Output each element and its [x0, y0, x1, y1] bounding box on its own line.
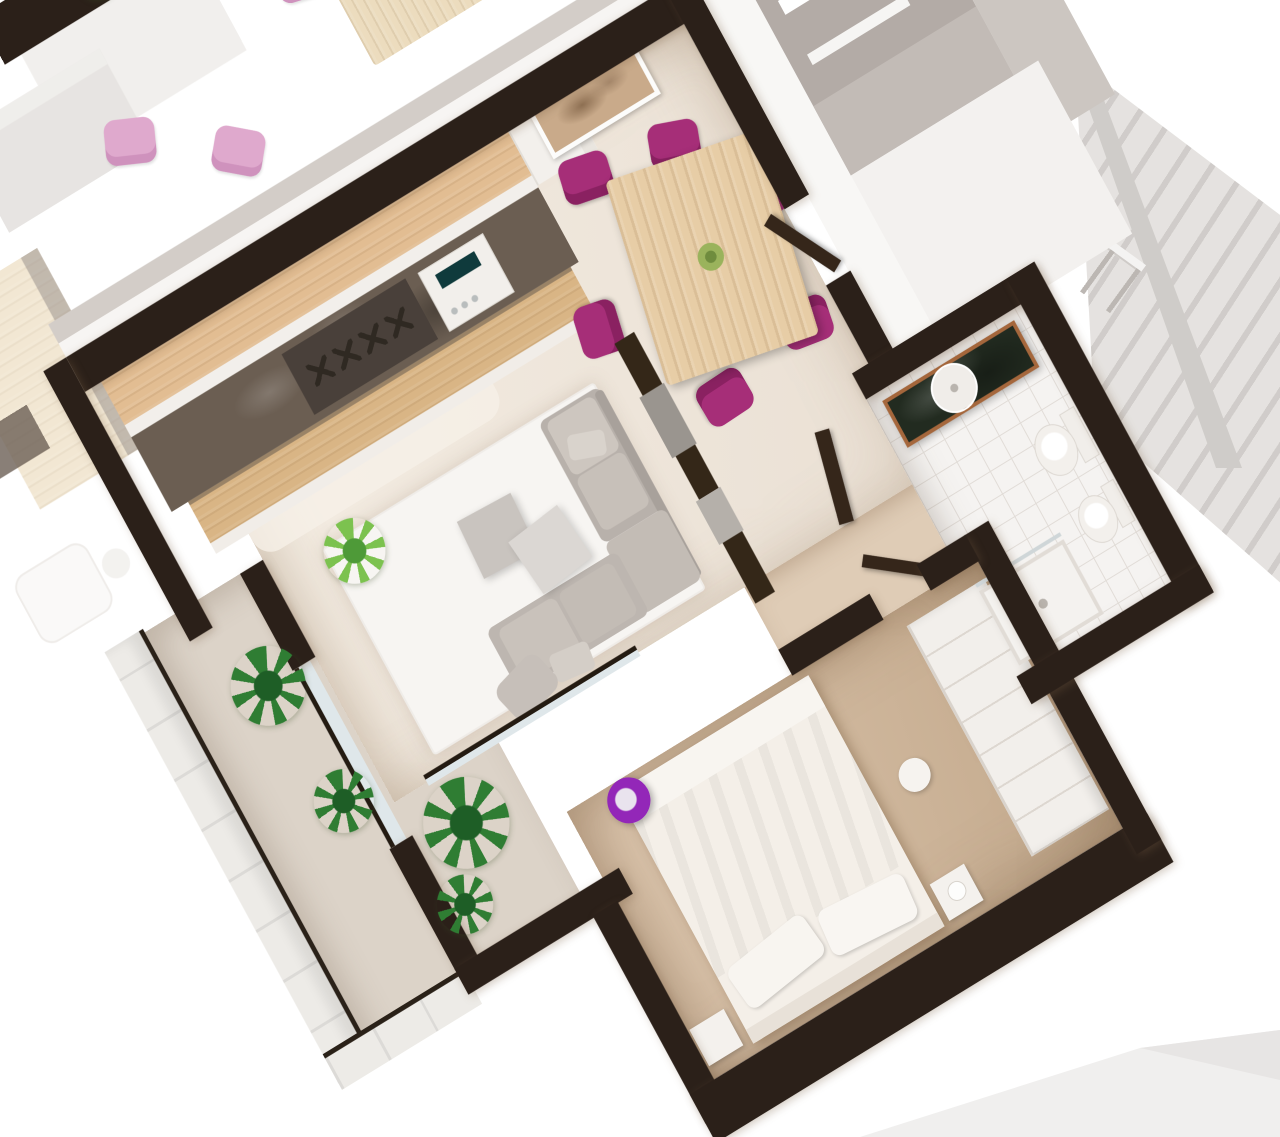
- neighbor-pink-chair: [271, 0, 332, 6]
- neighbor-armchair: [10, 537, 118, 649]
- neighbor-pink-chair: [210, 124, 267, 179]
- burner-icon: [305, 354, 336, 387]
- table-centerpiece: [694, 239, 727, 274]
- floorplan-scene: [0, 0, 1280, 1137]
- burner-icon: [331, 338, 362, 371]
- burner-icon: [357, 322, 388, 355]
- burner-icon: [384, 306, 415, 339]
- neighbor-pink-chair: [103, 116, 158, 167]
- oven-display: [435, 251, 482, 289]
- shower-drain: [1037, 597, 1050, 611]
